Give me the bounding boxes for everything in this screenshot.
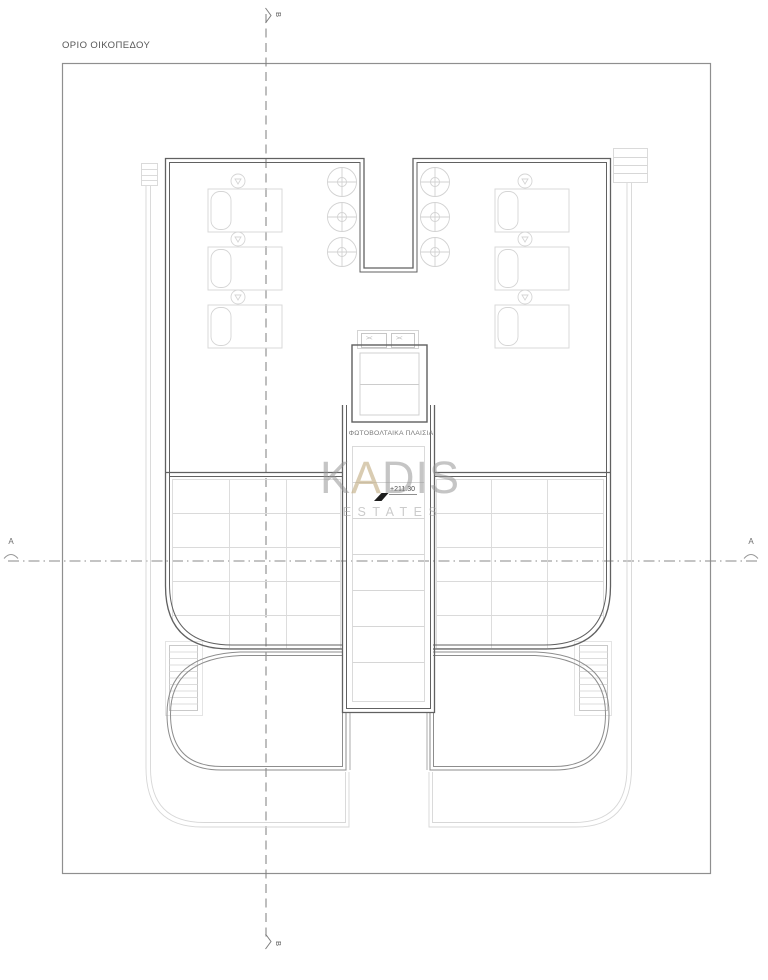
tree-icon [421, 203, 450, 232]
lounger-icon [208, 174, 282, 232]
elevation-label: +211.30 [389, 486, 417, 495]
pv-grid-right [437, 480, 604, 649]
trees-group [328, 168, 450, 267]
vent-symbol: >< [366, 336, 372, 342]
section-marker-b-bottom: B [274, 941, 283, 946]
tree-icon [328, 203, 357, 232]
section-line-b [266, 8, 272, 949]
pv-column-center [353, 447, 425, 702]
section-marker-a-right: A [743, 537, 759, 546]
section-marker-a-left: A [3, 537, 19, 546]
tree-icon [328, 238, 357, 267]
tree-icon [421, 168, 450, 197]
section-a-chevron-left [4, 555, 18, 559]
section-line-a [4, 555, 760, 562]
tree-icon [328, 168, 357, 197]
stairs-right [575, 642, 612, 716]
lower-terrace-outline [167, 652, 609, 770]
lounger-icon [495, 232, 569, 290]
pv-panels-label: ΦΩΤΟΒΟΛΤΑΙΚΑ ΠΛΑΙΣΙΑ [330, 430, 452, 437]
plot-boundary-label: ΟΡΙΟ ΟΙΚΟΠΕΔΟΥ [62, 40, 150, 51]
section-marker-b-top: B [274, 12, 283, 17]
vent-symbol: >< [396, 336, 402, 342]
plot-boundary [63, 64, 711, 874]
loungers-group [208, 174, 569, 348]
elevation-marker-icon [374, 493, 389, 501]
lounger-icon [495, 290, 569, 348]
section-a-chevron-right [744, 555, 758, 559]
site-plan-canvas: ΟΡΙΟ ΟΙΚΟΠΕΔΟΥ ΦΩΤΟΒΟΛΤΑΙΚΑ ΠΛΑΙΣΙΑ +211… [0, 0, 768, 980]
central-shaft [343, 405, 435, 713]
lounger-icon [208, 232, 282, 290]
tree-icon [421, 238, 450, 267]
pv-grid-left [173, 480, 341, 649]
lounger-icon [495, 174, 569, 232]
site-plan-drawing [0, 0, 768, 980]
lounger-icon [208, 290, 282, 348]
elevator-bulkhead [352, 331, 427, 423]
